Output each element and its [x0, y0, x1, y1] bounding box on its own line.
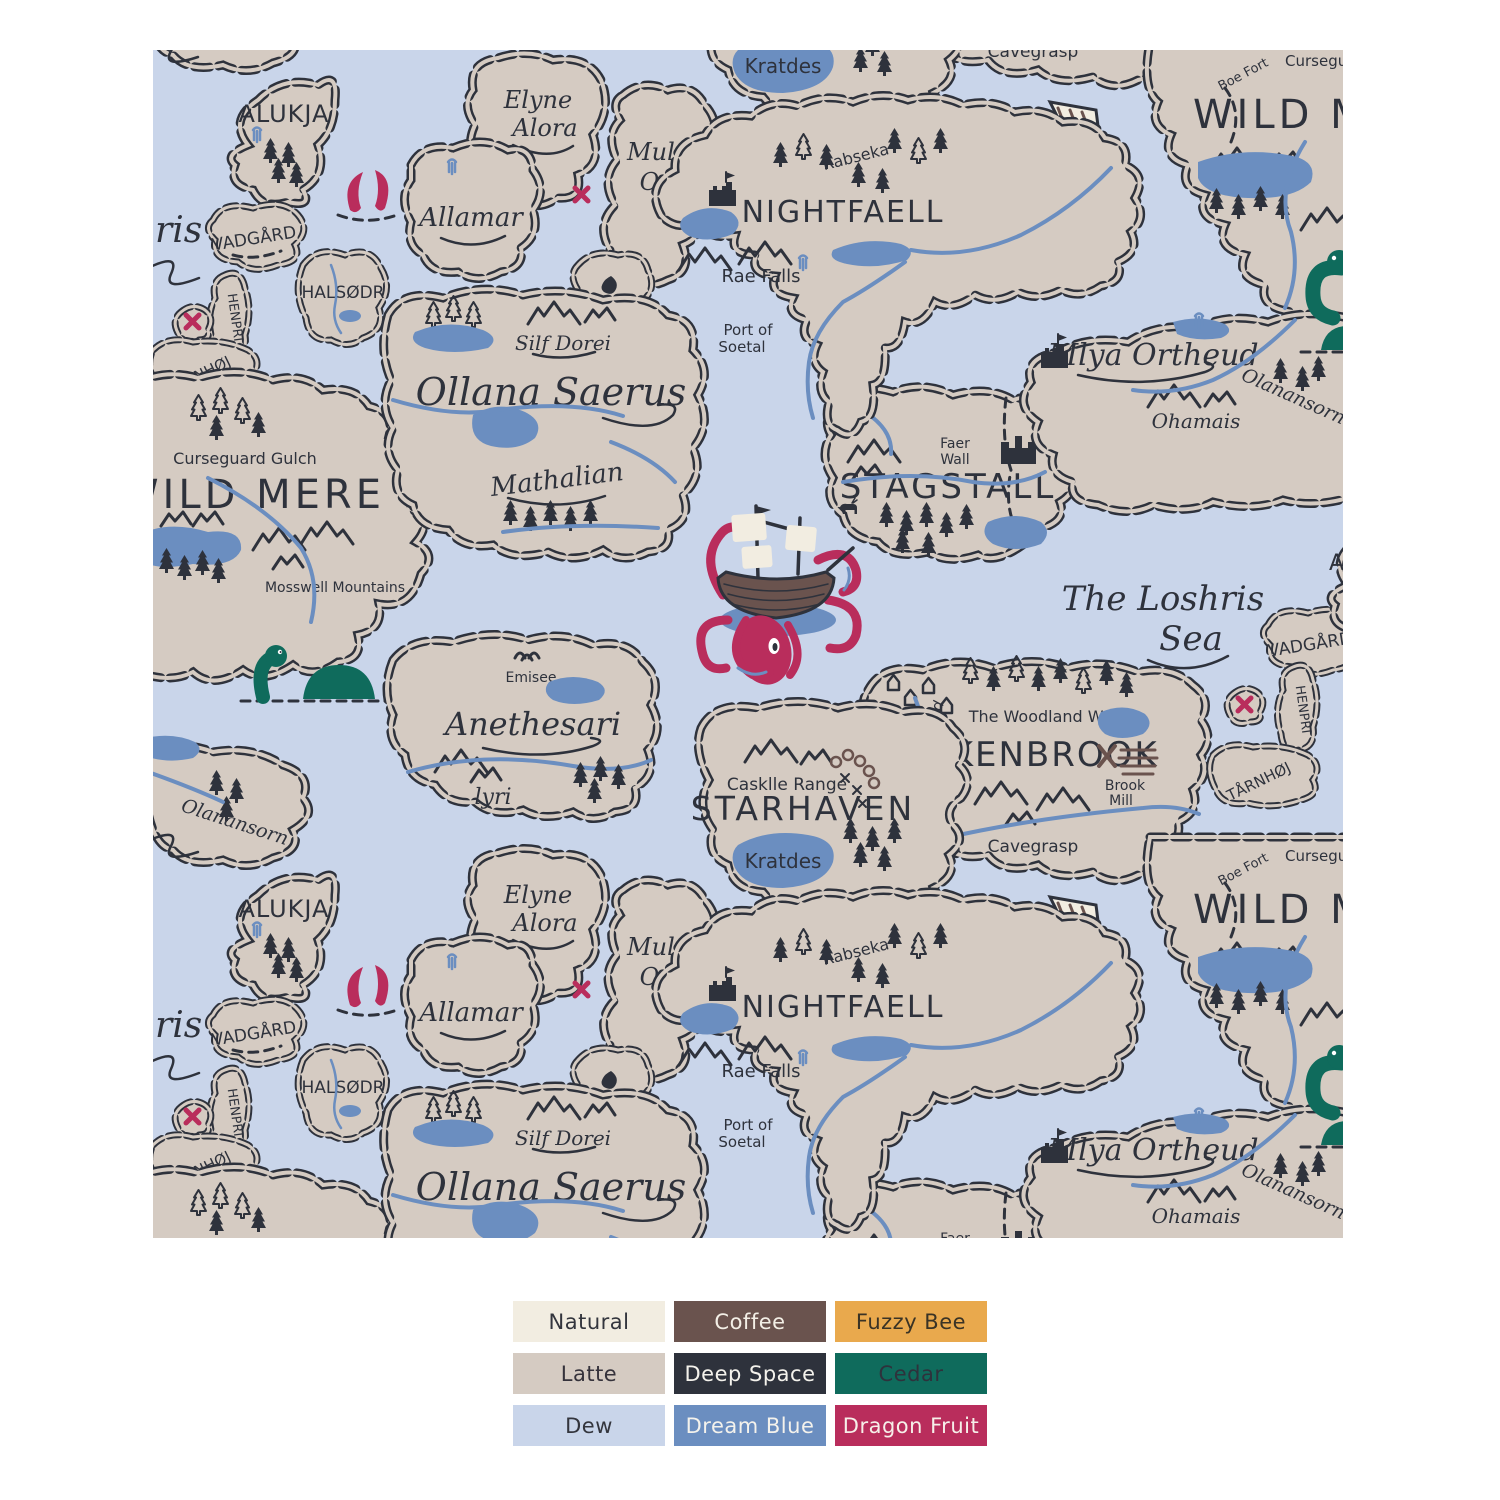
legend-swatch-label: Coffee	[714, 1310, 785, 1334]
legend-swatch-label: Dream Blue	[686, 1414, 815, 1438]
legend-swatch-cedar: Cedar	[835, 1353, 987, 1394]
color-legend: Natural Coffee Fuzzy Bee Latte Deep Spac…	[513, 1301, 987, 1446]
pirate-map-pattern: ris ALUKJA Elyne Alora	[153, 50, 1343, 1238]
legend-swatch-label: Dragon Fruit	[843, 1414, 979, 1438]
legend-swatch-label: Natural	[549, 1310, 630, 1334]
legend-swatch-dew: Dew	[513, 1405, 665, 1446]
legend-swatch-dragon-fruit: Dragon Fruit	[835, 1405, 987, 1446]
legend-swatch-label: Fuzzy Bee	[856, 1310, 966, 1334]
legend-swatch-natural: Natural	[513, 1301, 665, 1342]
legend-swatch-deep-space: Deep Space	[674, 1353, 826, 1394]
legend-swatch-fuzzy-bee: Fuzzy Bee	[835, 1301, 987, 1342]
legend-swatch-label: Deep Space	[684, 1362, 815, 1386]
legend-swatch-label: Dew	[565, 1414, 613, 1438]
legend-swatch-label: Latte	[561, 1362, 617, 1386]
legend-swatch-coffee: Coffee	[674, 1301, 826, 1342]
legend-swatch-dream-blue: Dream Blue	[674, 1405, 826, 1446]
legend-swatch-label: Cedar	[879, 1362, 944, 1386]
fabric-swatch-pirate-map: ris ALUKJA Elyne Alora	[153, 50, 1343, 1238]
legend-swatch-latte: Latte	[513, 1353, 665, 1394]
